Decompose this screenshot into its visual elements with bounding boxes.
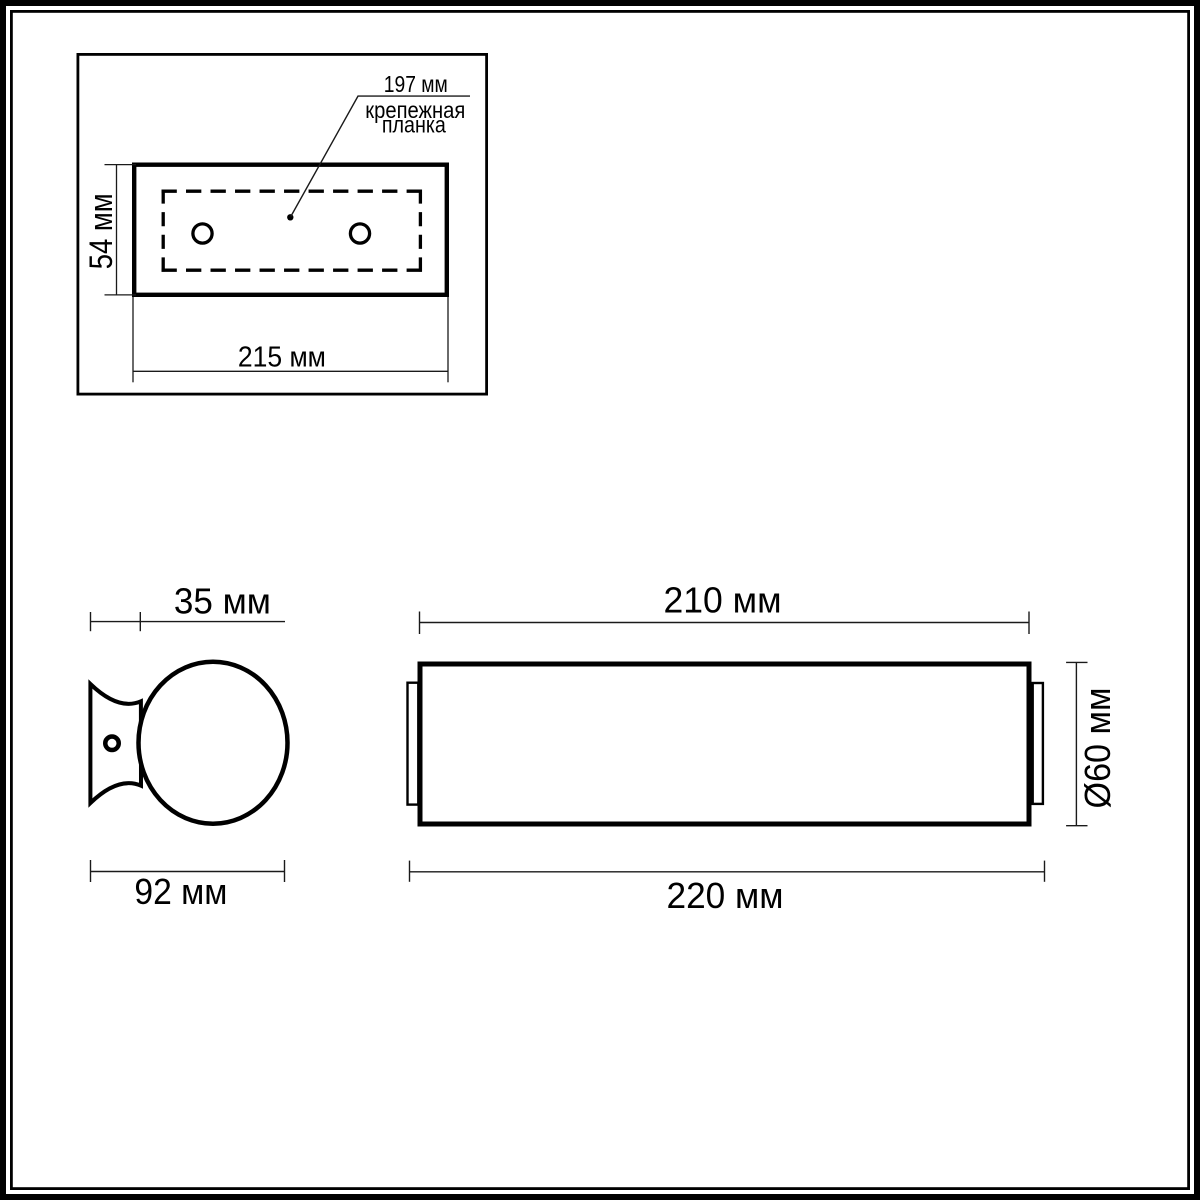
svg-text:54 мм: 54 мм <box>83 193 119 269</box>
svg-text:210 мм: 210 мм <box>664 579 782 620</box>
svg-text:планка: планка <box>382 112 446 138</box>
svg-text:35 мм: 35 мм <box>174 580 271 621</box>
svg-text:215 мм: 215 мм <box>238 341 326 373</box>
svg-text:Ø60 мм: Ø60 мм <box>1077 688 1118 809</box>
svg-text:92 мм: 92 мм <box>134 871 227 912</box>
svg-text:197 мм: 197 мм <box>384 71 448 97</box>
svg-text:220 мм: 220 мм <box>667 875 784 916</box>
